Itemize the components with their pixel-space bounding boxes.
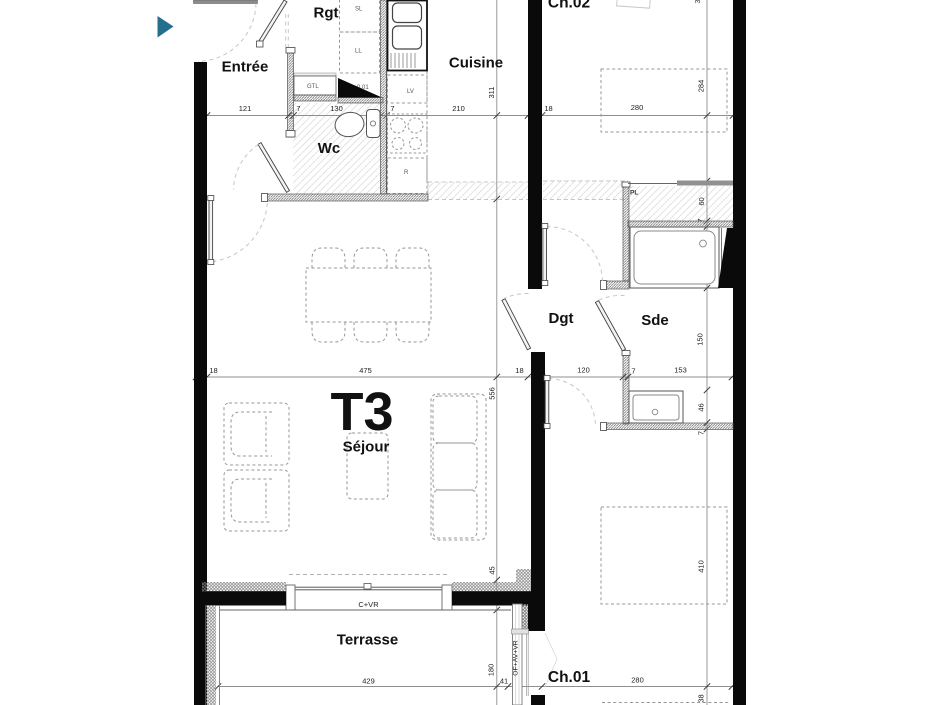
svg-text:PL: PL bbox=[630, 190, 638, 197]
svg-text:Cuisine: Cuisine bbox=[449, 55, 503, 72]
svg-text:7: 7 bbox=[697, 431, 706, 435]
svg-text:45: 45 bbox=[488, 566, 497, 574]
svg-text:7: 7 bbox=[631, 367, 635, 376]
svg-text:153: 153 bbox=[674, 366, 687, 375]
svg-text:130: 130 bbox=[330, 104, 343, 113]
svg-text:18: 18 bbox=[209, 366, 217, 375]
svg-text:Ch.02: Ch.02 bbox=[548, 0, 590, 12]
svg-text:150: 150 bbox=[696, 333, 705, 346]
svg-text:311: 311 bbox=[487, 87, 496, 99]
svg-text:60: 60 bbox=[697, 197, 706, 205]
svg-text:556: 556 bbox=[488, 387, 497, 400]
svg-text:46: 46 bbox=[697, 403, 706, 411]
svg-text:38: 38 bbox=[695, 0, 702, 4]
svg-text:7: 7 bbox=[296, 104, 300, 113]
svg-text:Terrasse: Terrasse bbox=[337, 632, 398, 649]
svg-text:LV: LV bbox=[407, 89, 414, 95]
svg-text:Rgt: Rgt bbox=[314, 5, 339, 22]
svg-text:7: 7 bbox=[390, 104, 394, 113]
svg-text:121: 121 bbox=[239, 104, 252, 113]
svg-text:38: 38 bbox=[697, 694, 706, 702]
svg-text:120: 120 bbox=[577, 366, 590, 375]
svg-text:429: 429 bbox=[362, 677, 375, 686]
svg-text:T3: T3 bbox=[330, 382, 393, 442]
svg-text:Dgt: Dgt bbox=[549, 310, 574, 327]
svg-text:280: 280 bbox=[631, 676, 644, 685]
svg-text:GTL: GTL bbox=[307, 84, 319, 90]
svg-text:280: 280 bbox=[631, 103, 644, 112]
svg-text:R: R bbox=[404, 170, 409, 176]
svg-text:18: 18 bbox=[515, 366, 523, 375]
svg-text:180: 180 bbox=[487, 664, 496, 677]
svg-text:OF+AV+VR: OF+AV+VR bbox=[513, 640, 520, 675]
svg-text:C+VR: C+VR bbox=[358, 600, 379, 609]
svg-text:Wc: Wc bbox=[318, 140, 341, 157]
svg-text:Sde: Sde bbox=[641, 312, 669, 329]
svg-text:Entrée: Entrée bbox=[222, 59, 269, 76]
svg-text:41: 41 bbox=[500, 677, 508, 686]
svg-text:410: 410 bbox=[697, 560, 706, 573]
svg-text:18: 18 bbox=[544, 104, 552, 113]
svg-text:LL: LL bbox=[355, 49, 362, 55]
svg-text:210: 210 bbox=[452, 104, 465, 113]
svg-text:Ch.01: Ch.01 bbox=[548, 669, 591, 686]
svg-text:284: 284 bbox=[697, 80, 706, 93]
svg-text:SL: SL bbox=[355, 7, 363, 13]
svg-text:475: 475 bbox=[359, 366, 372, 375]
